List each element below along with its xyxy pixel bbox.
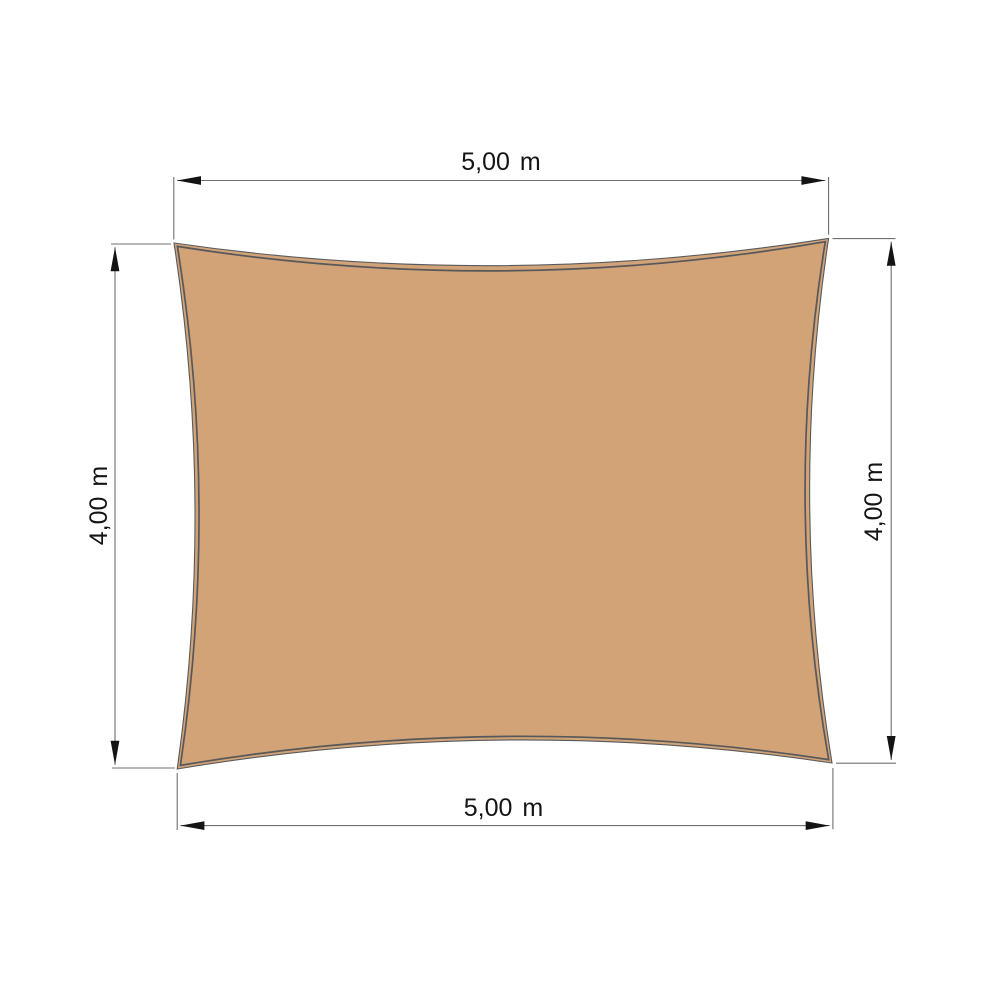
svg-text:5,00 m: 5,00 m: [464, 794, 544, 822]
svg-text:4,00 m: 4,00 m: [860, 462, 888, 542]
svg-text:5,00 m: 5,00 m: [461, 148, 541, 176]
svg-text:4,00 m: 4,00 m: [85, 466, 113, 546]
